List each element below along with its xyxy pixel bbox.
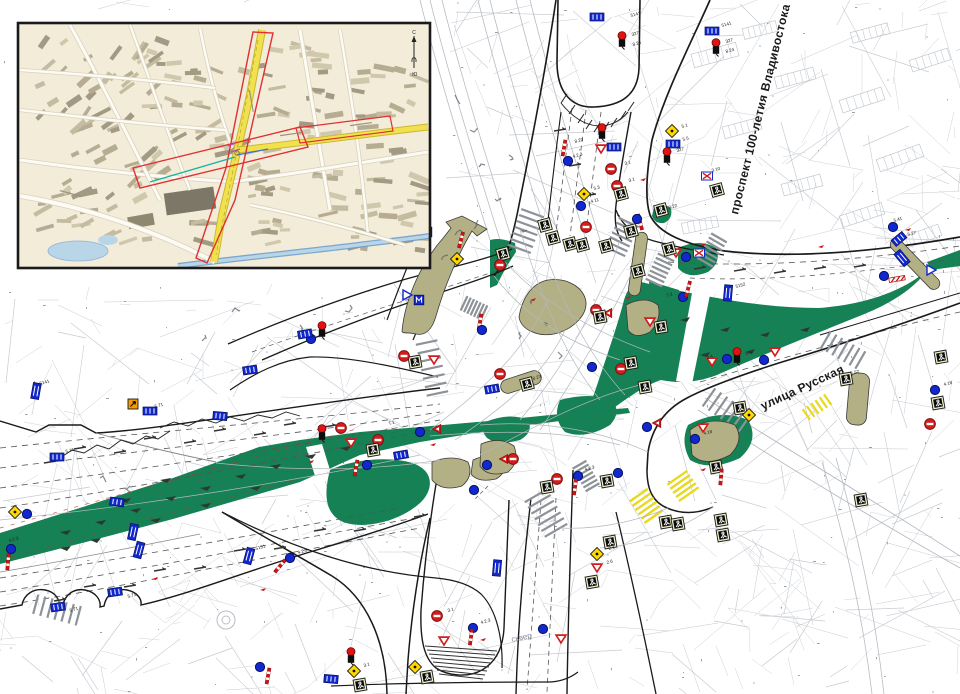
svg-text:С: С bbox=[412, 30, 416, 36]
svg-text:Ю: Ю bbox=[412, 72, 417, 78]
